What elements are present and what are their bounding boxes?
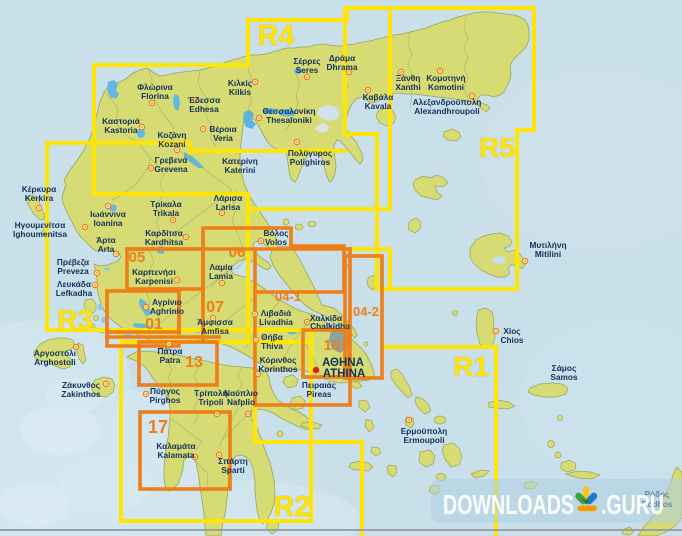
svg-text:Arta: Arta <box>98 244 115 254</box>
svg-text:Aghrinio: Aghrinio <box>150 306 184 316</box>
svg-text:Korinthos: Korinthos <box>258 364 298 374</box>
svg-text:Amfisa: Amfisa <box>201 326 229 336</box>
svg-text:Ermoupoli: Ermoupoli <box>403 435 444 445</box>
svg-text:Ioanina: Ioanina <box>93 218 122 228</box>
svg-text:Tripoli: Tripoli <box>199 397 224 407</box>
svg-text:Nafplio: Nafplio <box>227 397 255 407</box>
svg-text:Xanthi: Xanthi <box>395 82 420 92</box>
svg-text:Kavala: Kavala <box>365 101 392 111</box>
svg-text:Arghostoli: Arghostoli <box>34 357 75 367</box>
svg-text:07: 07 <box>206 299 224 316</box>
svg-text:04-2: 04-2 <box>353 304 379 319</box>
svg-text:13: 13 <box>185 354 203 371</box>
svg-text:Komotini: Komotini <box>428 82 464 92</box>
svg-text:ATHINA: ATHINA <box>323 368 366 380</box>
svg-text:Samos: Samos <box>550 372 578 382</box>
svg-text:Pireas: Pireas <box>307 389 332 399</box>
svg-text:Kastoria: Kastoria <box>104 125 138 135</box>
svg-text:Ighoumenitsa: Ighoumenitsa <box>13 229 67 239</box>
svg-text:Livadhia: Livadhia <box>259 317 293 327</box>
svg-text:05: 05 <box>129 249 146 266</box>
svg-text:R4: R4 <box>257 20 294 52</box>
svg-text:17: 17 <box>148 417 168 437</box>
svg-text:04-1: 04-1 <box>275 289 301 304</box>
svg-text:Kardhitsa: Kardhitsa <box>145 237 184 247</box>
svg-text:06: 06 <box>229 244 246 261</box>
svg-text:Mitilini: Mitilini <box>535 249 561 259</box>
svg-text:Volos: Volos <box>265 237 287 247</box>
svg-text:Zakinthos: Zakinthos <box>61 389 101 399</box>
svg-text:Preveza: Preveza <box>57 266 89 276</box>
svg-text:Dhrama: Dhrama <box>327 62 358 72</box>
svg-text:10: 10 <box>324 337 341 354</box>
svg-text:DOWNLOADS: DOWNLOADS <box>443 489 574 520</box>
svg-text:R2: R2 <box>273 491 310 523</box>
svg-text:Thesaloniki: Thesaloniki <box>266 115 312 125</box>
svg-text:Karpenisi: Karpenisi <box>135 276 173 286</box>
svg-text:Chios: Chios <box>500 335 523 345</box>
svg-text:Sparti: Sparti <box>221 465 245 475</box>
svg-text:Edhesa: Edhesa <box>189 104 219 114</box>
svg-text:Alexandhroupoli: Alexandhroupoli <box>414 106 479 116</box>
svg-text:Kozani: Kozani <box>158 139 185 149</box>
svg-text:R3: R3 <box>57 304 93 335</box>
svg-text:Polighiros: Polighiros <box>290 157 331 167</box>
svg-text:Chalkidha: Chalkidha <box>310 321 350 331</box>
svg-text:Kerkira: Kerkira <box>25 193 54 203</box>
svg-text:Larisa: Larisa <box>216 202 241 212</box>
svg-text:Kalamata: Kalamata <box>158 450 195 460</box>
svg-text:.GURU: .GURU <box>601 489 664 520</box>
svg-text:Grevena: Grevena <box>154 164 188 174</box>
svg-text:Katerini: Katerini <box>225 165 256 175</box>
svg-text:Pirghos: Pirghos <box>150 395 181 405</box>
svg-text:Florina: Florina <box>141 91 169 101</box>
svg-text:Lefkadha: Lefkadha <box>56 288 93 298</box>
svg-text:Trikala: Trikala <box>153 208 180 218</box>
svg-text:R5: R5 <box>479 132 515 163</box>
svg-text:01: 01 <box>145 316 163 333</box>
svg-text:Patra: Patra <box>160 355 181 365</box>
svg-text:Kilkis: Kilkis <box>229 87 252 97</box>
svg-text:Thiva: Thiva <box>261 341 283 351</box>
svg-text:Lamia: Lamia <box>209 271 233 281</box>
svg-text:Veria: Veria <box>213 133 233 143</box>
svg-text:Seres: Seres <box>296 65 319 75</box>
svg-text:R1: R1 <box>453 351 489 382</box>
